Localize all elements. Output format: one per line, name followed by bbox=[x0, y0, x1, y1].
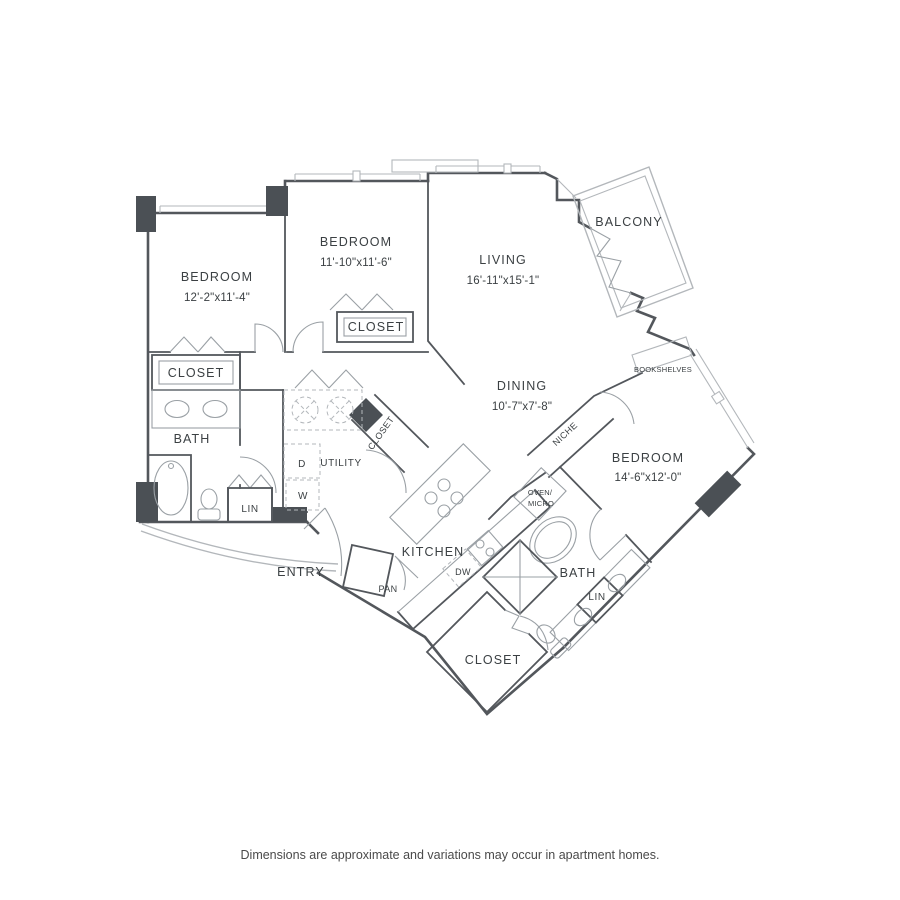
sink-bowl-icon bbox=[486, 548, 494, 556]
column bbox=[136, 196, 156, 232]
dims-dining: 10'-7"x7'-8" bbox=[492, 401, 552, 413]
disclaimer-text: Dimensions are approximate and variation… bbox=[0, 848, 900, 862]
column bbox=[136, 482, 158, 522]
corridor-curved-wall bbox=[141, 524, 338, 571]
bifold-closet2 bbox=[330, 294, 393, 310]
label-bedroom2: BEDROOM bbox=[320, 235, 392, 249]
sink-bowl-icon bbox=[476, 540, 484, 548]
label-lin2: LIN bbox=[588, 592, 605, 603]
label-pantry: PAN bbox=[378, 584, 397, 594]
label-kitchen: KITCHEN bbox=[402, 545, 465, 559]
tub-faucet-icon bbox=[169, 464, 174, 469]
column bbox=[273, 507, 307, 522]
label-lin1: LIN bbox=[241, 504, 258, 515]
label-living: LIVING bbox=[479, 253, 527, 267]
bifold-closet1 bbox=[170, 337, 225, 352]
balcony-railing bbox=[557, 167, 693, 317]
shelf-icon bbox=[327, 397, 353, 423]
sink-icon bbox=[203, 401, 227, 418]
label-micro: MICRO bbox=[528, 499, 554, 508]
column bbox=[695, 471, 742, 518]
label-balcony: BALCONY bbox=[595, 215, 662, 229]
door-bedroom3 bbox=[600, 392, 634, 424]
bathtub-icon bbox=[520, 507, 585, 572]
label-bath2: BATH bbox=[560, 566, 597, 580]
label-bookshelves: BOOKSHELVES bbox=[634, 365, 692, 374]
label-niche: NICHE bbox=[551, 420, 580, 448]
label-oven: OVEN/ bbox=[528, 488, 553, 497]
label-entry: ENTRY bbox=[277, 565, 325, 579]
label-closet1: CLOSET bbox=[168, 366, 225, 380]
sink-icon bbox=[571, 605, 595, 629]
burner-icon bbox=[425, 492, 437, 504]
label-washer: W bbox=[298, 491, 308, 502]
floorplan-page: BEDROOM 12'-2"x11'-4" BEDROOM 11'-10"x11… bbox=[0, 0, 900, 900]
wire-shelf bbox=[284, 390, 362, 430]
dims-living: 16'-11"x15'-1" bbox=[467, 275, 540, 287]
sink-icon bbox=[605, 571, 629, 595]
label-closet3: CLOSET bbox=[465, 653, 522, 667]
shelf-icon bbox=[292, 397, 318, 423]
bifold-lin1 bbox=[228, 475, 272, 488]
column bbox=[266, 186, 288, 216]
label-bath1: BATH bbox=[174, 432, 211, 446]
bathtub-inner bbox=[528, 515, 579, 566]
door-bedroom2 bbox=[293, 322, 323, 352]
toilet-tank bbox=[198, 509, 220, 520]
label-dining: DINING bbox=[497, 379, 547, 393]
door-bath2 bbox=[590, 509, 626, 560]
burner-icon bbox=[451, 492, 463, 504]
label-bedroom1: BEDROOM bbox=[181, 270, 253, 284]
window-mullion bbox=[504, 164, 511, 173]
door-closet3 bbox=[505, 610, 529, 634]
door-bedroom1 bbox=[255, 324, 283, 352]
shelf-cross-icon bbox=[331, 401, 349, 419]
door-bath2-hall bbox=[520, 616, 548, 650]
dims-bedroom2: 11'-10"x11'-6" bbox=[320, 257, 392, 269]
interior-walls bbox=[148, 181, 651, 712]
door-pantry bbox=[395, 556, 418, 590]
label-dishwasher: DW bbox=[455, 567, 471, 577]
window-mullion bbox=[353, 171, 360, 181]
burner-icon bbox=[438, 505, 450, 517]
dims-bedroom1: 12'-2"x11'-4" bbox=[184, 292, 250, 304]
dims-bedroom3: 14'-6"x12'-0" bbox=[615, 472, 682, 484]
bifold-utility bbox=[295, 370, 363, 388]
sink-icon bbox=[165, 401, 189, 418]
label-dryer: D bbox=[298, 459, 306, 470]
burner-icon bbox=[438, 479, 450, 491]
toilet-icon bbox=[201, 489, 217, 509]
shelf-cross-icon bbox=[296, 401, 314, 419]
label-utility: UTILITY bbox=[320, 458, 361, 469]
label-closet2: CLOSET bbox=[348, 320, 405, 334]
kitchen-island bbox=[390, 444, 490, 544]
floor-plan-svg: BEDROOM 12'-2"x11'-4" BEDROOM 11'-10"x11… bbox=[0, 0, 900, 900]
kitchen-sink bbox=[467, 531, 503, 566]
column bbox=[349, 398, 383, 432]
windows bbox=[160, 160, 754, 448]
label-bedroom3: BEDROOM bbox=[612, 451, 684, 465]
window-mullion bbox=[712, 391, 724, 403]
room-labels: BEDROOM 12'-2"x11'-4" BEDROOM 11'-10"x11… bbox=[168, 215, 692, 667]
door-utility bbox=[366, 450, 406, 493]
bathtub-icon bbox=[154, 461, 188, 515]
